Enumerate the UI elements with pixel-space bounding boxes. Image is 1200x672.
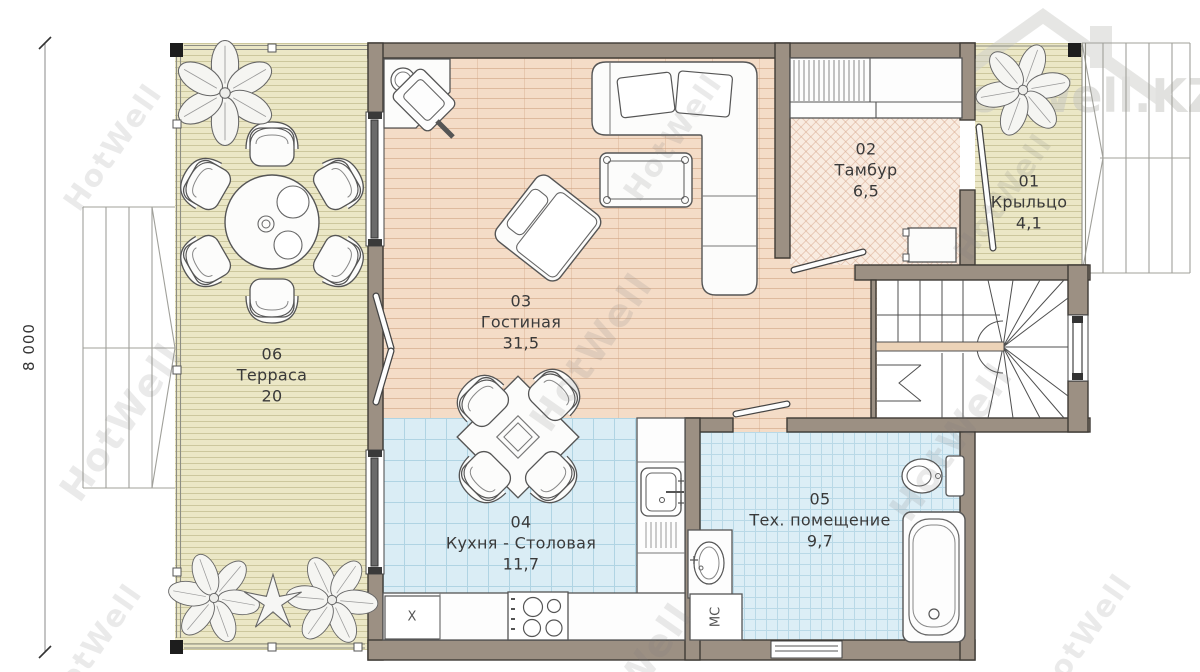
wardrobe	[790, 58, 962, 118]
floor-plan: HotWell.KZ	[0, 0, 1200, 672]
room-number: 05	[749, 489, 890, 510]
room-name: Крыльцо	[991, 192, 1068, 213]
room-label-porch: 01 Крыльцо 4,1	[991, 171, 1068, 234]
stove	[508, 592, 568, 640]
washing-machine-label: МС	[709, 607, 724, 627]
window-tech-south	[771, 641, 842, 658]
room-label-terrace: 06 Терраса 20	[237, 344, 307, 407]
room-number: 04	[446, 512, 596, 533]
room-number: 01	[991, 171, 1068, 192]
terrace-chair	[308, 228, 372, 295]
room-name: Тамбур	[835, 160, 898, 181]
room-area: 20	[237, 386, 307, 407]
terrace-chair	[246, 279, 298, 323]
room-number: 02	[835, 139, 898, 160]
bathtub	[903, 512, 965, 642]
room-label-kitchen: 04 Кухня - Столовая 11,7	[446, 512, 596, 575]
room-name: Гостиная	[481, 312, 561, 333]
kitchen-cabinet-label: X	[408, 610, 417, 625]
room-area: 4,1	[991, 213, 1068, 234]
armchair	[491, 171, 605, 285]
washbasin	[688, 530, 732, 598]
wall-vestibule-west	[775, 43, 790, 258]
room-area: 11,7	[446, 554, 596, 575]
stair-handrail	[876, 342, 1004, 351]
tech-room-door	[736, 404, 787, 414]
wall-top	[368, 43, 975, 58]
terrace-table	[225, 175, 319, 269]
window-kitchen-west	[366, 450, 384, 574]
room-name: Терраса	[237, 365, 307, 386]
dish-drainer	[646, 522, 676, 548]
sofa-pillow	[617, 72, 675, 118]
terrace-chair	[172, 228, 236, 295]
room-area: 9,7	[749, 531, 890, 552]
wall-stair-west	[871, 280, 876, 418]
room-number: 06	[237, 344, 307, 365]
wall-stair-north	[855, 265, 1090, 280]
room-name: Кухня - Столовая	[446, 533, 596, 554]
room-name: Тех. помещение	[749, 510, 890, 531]
kitchen-counter-right	[637, 418, 685, 595]
terrace-chair	[246, 122, 298, 166]
stair-direction-arrow	[899, 365, 921, 401]
fireplace	[384, 59, 457, 137]
room-area: 6,5	[835, 181, 898, 202]
room-label-living: 03 Гостиная 31,5	[481, 291, 561, 354]
wall-stair-east-upper	[1068, 265, 1088, 315]
room-number: 03	[481, 291, 561, 312]
room-label-vestibule: 02 Тамбур 6,5	[835, 139, 898, 202]
window-stair-east	[1068, 315, 1088, 381]
vestibule-living-door	[794, 252, 863, 270]
room-label-tech: 05 Тех. помещение 9,7	[749, 489, 890, 552]
wall-stair-east-lower	[1068, 381, 1088, 432]
dimension-text: 8 000	[20, 323, 38, 371]
room-area: 31,5	[481, 333, 561, 354]
window-living-west	[366, 112, 384, 246]
kitchen-sink	[641, 468, 684, 516]
dimension-line	[39, 37, 51, 658]
